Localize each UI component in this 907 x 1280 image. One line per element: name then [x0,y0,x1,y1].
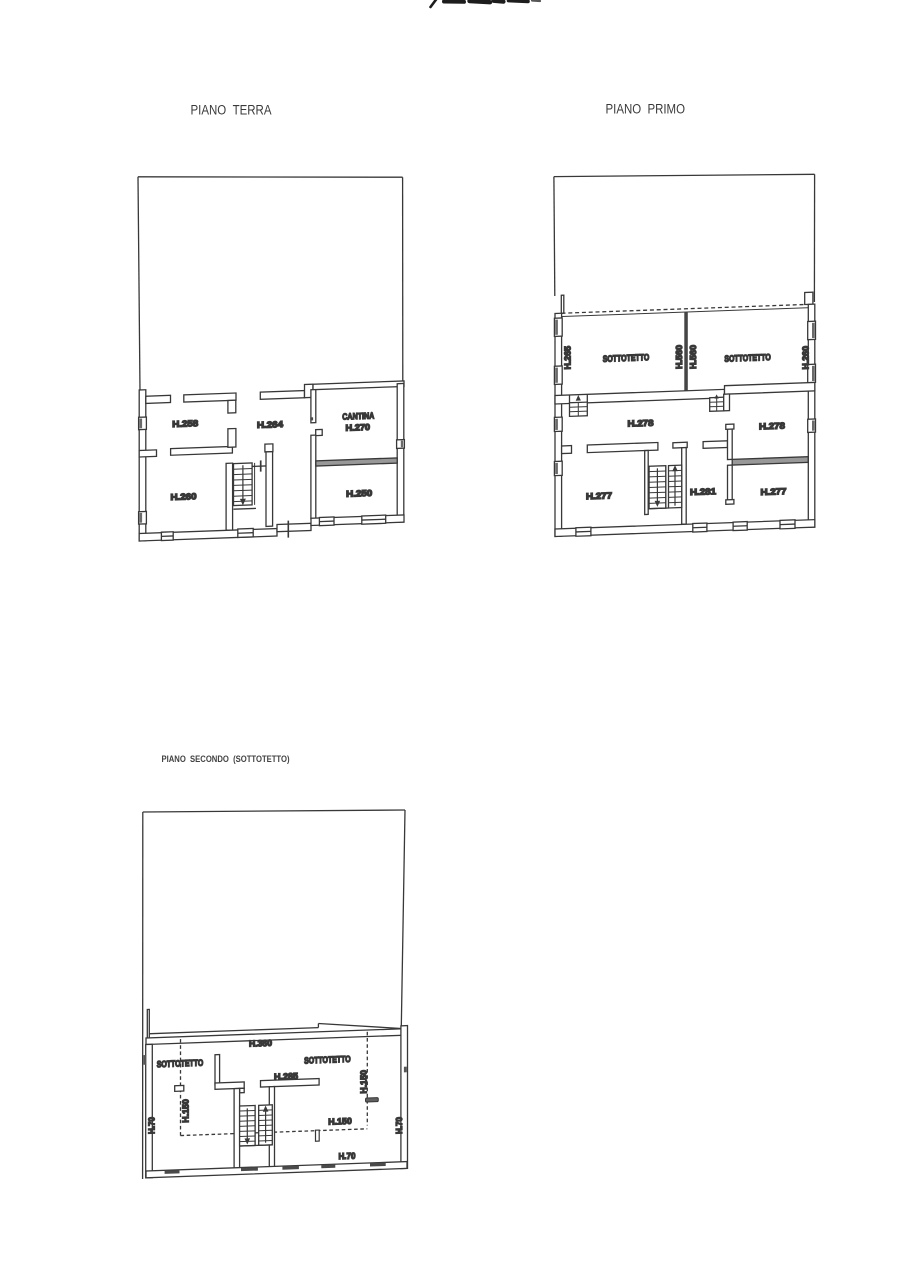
svg-text:H.264: H.264 [257,419,283,430]
svg-text:H.260: H.260 [801,346,811,370]
svg-text:H.277: H.277 [761,486,787,497]
svg-text:H.285: H.285 [274,1071,298,1082]
svg-text:H.265: H.265 [563,346,573,370]
svg-text:H.70: H.70 [394,1117,404,1134]
svg-text:H.258: H.258 [172,418,198,429]
svg-text:H.260: H.260 [171,491,197,502]
svg-text:SOTTOTETTO: SOTTOTETTO [724,352,771,364]
svg-text:H.150: H.150 [181,1099,191,1123]
svg-text:H.277: H.277 [586,490,612,501]
svg-text:H.70: H.70 [339,1151,356,1162]
svg-text:H.278: H.278 [759,421,785,432]
svg-text:PIANO TERRA: PIANO TERRA [191,103,272,118]
svg-text:H.150: H.150 [328,1116,352,1127]
svg-text:PIANO SECONDO (SOTTOTETTO): PIANO SECONDO (SOTTOTETTO) [162,753,290,764]
svg-text:H.250: H.250 [346,488,372,499]
svg-text:PIANO PRIMO: PIANO PRIMO [606,102,686,117]
svg-text:H.150: H.150 [359,1070,369,1094]
svg-text:SOTTOTETTO: SOTTOTETTO [603,352,650,364]
svg-text:H.560: H.560 [674,345,684,369]
svg-text:H.270: H.270 [346,422,371,433]
svg-text:SOTTOTETTO: SOTTOTETTO [304,1054,351,1066]
svg-text:CANTINA: CANTINA [342,411,375,422]
svg-text:H.70: H.70 [147,1117,157,1134]
svg-text:H.360: H.360 [249,1038,272,1049]
svg-text:SOTTOTETTO: SOTTOTETTO [157,1058,204,1070]
svg-text:H.278: H.278 [628,418,654,429]
svg-text:H.281: H.281 [690,486,716,497]
svg-text:H.560: H.560 [688,345,698,369]
